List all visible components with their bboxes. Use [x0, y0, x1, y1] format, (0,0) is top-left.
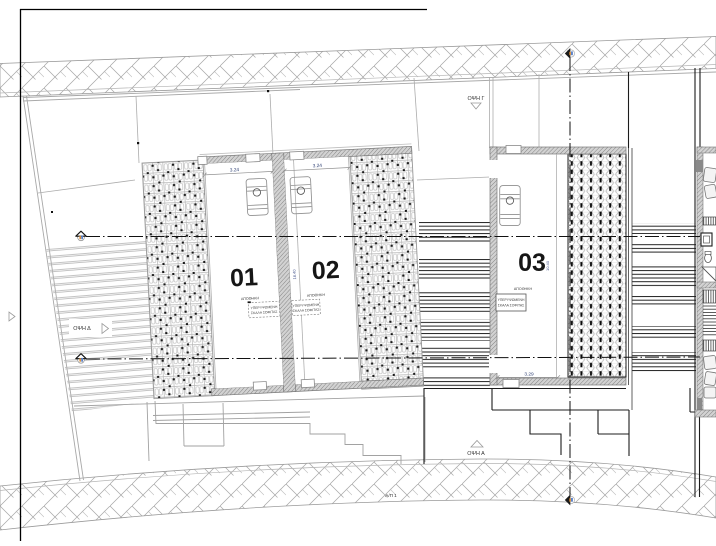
svg-text:02: 02	[311, 256, 340, 285]
svg-text:01: 01	[229, 263, 258, 292]
svg-text:3.24: 3.24	[313, 163, 323, 169]
svg-text:ΟΨΗ Α: ΟΨΗ Α	[467, 451, 485, 457]
svg-text:Α/Π 1: Α/Π 1	[385, 493, 397, 498]
svg-text:ΣΚΑΛΑ ΣΟΦΙΤΑΣ: ΣΚΑΛΑ ΣΟΦΙΤΑΣ	[498, 304, 524, 308]
svg-text:16.40: 16.40	[292, 269, 298, 280]
svg-text:ΟΨΗ Γ: ΟΨΗ Γ	[467, 96, 484, 102]
svg-text:ΥΠΕΡΥΨΩΜΕΝΗ: ΥΠΕΡΥΨΩΜΕΝΗ	[498, 298, 525, 302]
svg-text:ΑΠΟΘΗΚΗ: ΑΠΟΘΗΚΗ	[514, 287, 533, 291]
svg-text:ΟΨΗ Δ: ΟΨΗ Δ	[73, 326, 91, 332]
svg-text:3.29: 3.29	[524, 372, 534, 378]
svg-text:03: 03	[518, 249, 546, 277]
svg-text:3.24: 3.24	[230, 167, 240, 173]
svg-text:10.40: 10.40	[545, 260, 550, 271]
